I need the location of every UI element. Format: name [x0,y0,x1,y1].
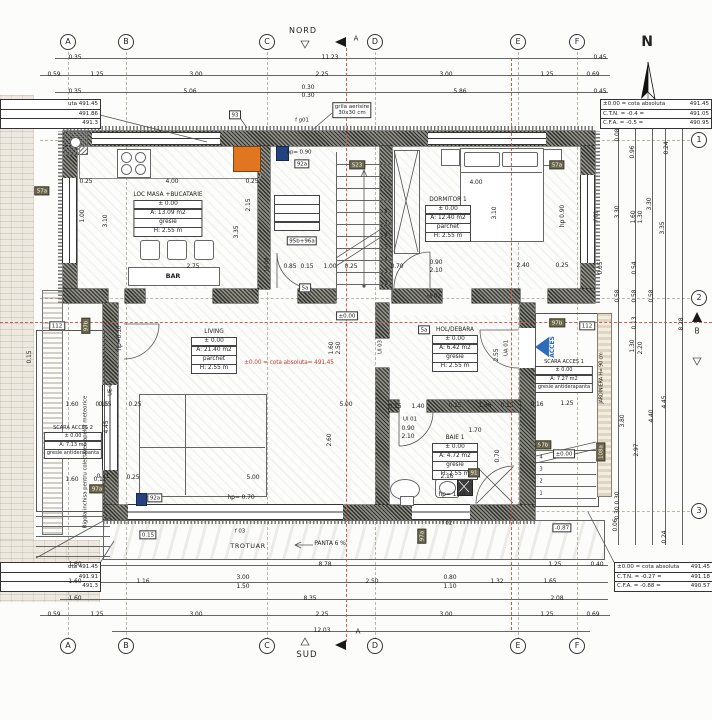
table-row: 491.86 [1,109,100,119]
dim-label: 1.16 [137,579,150,585]
dim-label: 0.15 [389,404,402,410]
dim-label: 1.25 [541,612,554,618]
f01-label: f 01 [594,211,600,221]
dim-label: 3.00 [190,612,203,618]
elevation-table-bottom-left: uta 491.45 491.91 491.3 [0,562,101,592]
table-row: uta 491.45 [1,100,100,109]
room-height: H: 2.55 m [191,364,237,374]
wardrobe-cross [394,150,418,252]
dim-label: 0.90 [430,260,443,266]
elevation-table-bottom-right: ±0.00 = cota absoluta491.45 C.T.N. = -0.… [614,562,712,592]
slope-line-left [36,516,112,558]
grila-callout: grila aerisire30x30 cm [332,102,371,118]
room-name: BAIE 1 [432,436,478,442]
grid-bubble-C-top: C [259,34,275,50]
tag-s23: S23 [349,160,365,169]
shower-tray [476,466,514,504]
table-row: C.F.A. = -0.5 =490.95 [601,118,711,128]
living-level-note: ±0.00 = cota absoluta= 491.45 [244,361,334,367]
bar-label: BAR [166,273,181,280]
compass-needle-light-icon [648,62,655,99]
dim-label: 0.15 [301,264,314,270]
panta-label: PANTA 6 % [314,541,346,547]
ui01-label: UI 01 [403,417,417,423]
acces-arrow-icon [535,337,549,357]
dim-label: 8.35 [304,596,317,602]
dim-label: 1.25 [91,72,104,78]
dim-label: 0.25 [127,475,140,481]
dim-label: 2.08 [551,596,564,602]
trotuar-label: TROTUAR [230,543,266,550]
room-name: DORMITOR 1 [425,198,471,204]
dim-label: 3.35 [234,226,240,239]
tag-level-zero: ±0.00 [336,311,358,320]
acces-label: ACCES [550,336,556,357]
stair-number: 1 [539,492,542,497]
stair-number: 4 [539,456,542,461]
room-height: H: 2.55 m [133,227,202,237]
tag-112: 112 [579,321,595,330]
cell: C.F.A. = -0.88 = [617,583,661,589]
cell: 491.45 [690,101,709,107]
section-line-b [0,322,712,323]
tag-5a: 5a [418,325,430,334]
dim-label: 0.08 [615,129,621,142]
dim-label: 5.86 [454,89,467,95]
tag-95b96a: 95b+96a [287,236,317,245]
dim-label: 0.59 [48,612,61,618]
cell: C.T.N. = -0.4 = [603,111,644,117]
dim-label: 5.00 [340,402,353,408]
dim-label: 2.97 [634,444,640,457]
dim-label: 0.30 [302,93,315,99]
cell: ±0.00 = cota absoluta [603,101,665,107]
dim-label: 1.60 [69,579,82,585]
dim-label: 8.78 [319,562,332,568]
table-row: 491.91 [1,572,100,582]
stair-number: 6 [384,234,387,239]
room-block-stair2: SCARA ACCES 2 ± 0.00 A: 7.13 m2 gresie a… [44,426,102,459]
dim-label: 0.45 [594,55,607,61]
dim-label: 0.30 [615,492,621,505]
room-name: LIVING [191,330,237,336]
room-height: H: 2.55 m [432,362,478,372]
tag-minus-087: -0.87 [552,523,571,532]
dim-label: 4.45 [104,421,110,434]
tag-57a: 57a [34,186,49,195]
room-name: SCARA ACCES 2 [44,426,102,431]
dim-label: 2.10 [402,434,415,440]
grid-bubble-B-bottom: B [118,638,134,654]
dim-label: 3.00 [190,72,203,78]
dim-label: 0.85 [284,264,297,270]
dim-label: 2.75 [187,264,200,270]
section-b-open-icon [693,358,701,365]
dim-label: 3.30 [615,206,621,219]
ui03-label: UI 03 [378,340,384,354]
dim-label: 0.58 [649,290,655,303]
dim-label: 5.00 [247,475,260,481]
dim-label: 0.80 [444,575,457,581]
dim-label: 2.25 [316,612,329,618]
stair-number: 3 [384,270,387,275]
dim-label: 0.15 [96,402,109,408]
section-b-label: B [694,327,699,335]
room-block-stair1: SCARA ACCES 1 ± 0.00 A: 7.27 m2 gresie a… [535,360,593,393]
dim-label: hp= 0.70 [227,495,254,501]
room-block-hall: HOL/DEBARA ± 0.00 A: 6.42 m2 gresie H: 2… [432,328,478,372]
dim-label: 0.35 [69,55,82,61]
dim-label: 1.25 [541,72,554,78]
fg01-label: f g01 [295,118,309,124]
tag-93: 93 [229,110,241,119]
section-a-label-bottom: A [356,629,361,636]
stair-number: 7 [384,222,387,227]
dim-label: 3.00 [440,72,453,78]
dim-label: 3.30 [647,198,653,211]
callout-line: 30x30 cm [338,110,365,116]
table-row: 491.3 [1,581,100,591]
stair-number: 2 [384,282,387,287]
table-row: C.F.A. = -0.88 =490.57 [615,581,712,591]
stair-number: 5 [384,246,387,251]
ua01-label: UA 01 [504,340,510,356]
tag-97a: 97a [417,528,426,543]
room-block-kitchen: LOC MASA +BUCATARIE ± 0.00 A: 13.09 m2 g… [133,193,202,237]
tag-91: 91 [468,468,480,477]
dim-label: 0.15 [449,403,462,409]
room-height: H: 2.55 m [425,232,471,242]
dim-label: 1.25 [91,612,104,618]
rigola-note: Rigola inchisa pentru colectarea apelor … [83,396,89,529]
dim-label: 0.15 [501,403,514,409]
room-name: SCARA ACCES 1 [535,360,593,365]
jardiniera-note: JARDINIERA H= 90 cm [601,352,606,403]
dim-label: 0.70 [495,450,501,463]
section-line-a [346,48,347,642]
dim-label: 3.00 [440,612,453,618]
sud-marker-icon [301,638,309,645]
dim-label: 0.24 [664,142,670,155]
dim-label: 1.25 [561,401,574,407]
room-floor: gresie antiderapanta [535,383,593,393]
dim-label: 1.25 [549,562,562,568]
dim-label: 0.96 [630,146,636,159]
dim-label: 0.11 [94,477,107,483]
cell: 491.45 [691,564,710,570]
ui04-label: UI 04 [265,257,271,271]
axis-line-red [511,58,512,630]
dim-label: 0.69 [587,72,600,78]
f02-label: f 02 [442,521,452,527]
dim-label: 1.65 [544,579,557,585]
tag-97b: 97b [549,318,565,327]
dim-label: 0.69 [587,612,600,618]
table-row: ±0.00 = cota absoluta491.45 [615,563,712,572]
cell: 490.95 [690,120,709,126]
grid-bubble-F-top: F [569,34,585,50]
dim-label: 4.00 [166,179,179,185]
room-name: HOL/DEBARA [432,328,478,334]
room-name: LOC MASA +BUCATARIE [133,193,202,199]
dim-label: 0.54 [632,262,638,275]
grid-bubble-C-bottom: C [259,638,275,654]
dim-label: 3.80 [620,415,626,428]
dim-label: 1.30 [630,340,636,353]
table-row: C.T.N. = -0.4 =491.05 [601,109,711,119]
dim-label: 2.16 [441,474,454,480]
dim-label: 1.32 [491,579,504,585]
dim-label: 2.15 [246,199,252,212]
tag-5a: 5a [299,283,311,292]
room-height [274,222,320,232]
dim-label: 0.06 [613,519,619,532]
dim-label: hp= 1.10 [438,492,465,498]
dim-label: 3.10 [103,215,109,228]
ui02-label: UI 02 [427,294,441,300]
f03-label: f 03 [235,529,245,535]
dim-label: 0.30 [302,85,315,91]
tag-015: 0.15 [139,530,156,539]
dim-label: 3.10 [492,207,498,220]
dim-label: 1.60 [69,562,82,568]
cell: ±0.00 = cota absoluta [617,564,679,570]
floor-plan-drawing: ±0.00 = cota absoluta491.45 C.T.N. = -0.… [0,0,712,720]
dim-label: 0.25 [246,179,259,185]
dim-label: 0.25 [556,263,569,269]
grid-bubble-A-bottom: A [60,638,76,654]
tag-92a: 92a [147,493,162,502]
grid-bubble-E-bottom: E [510,638,526,654]
dim-label: 0.25 [129,402,142,408]
grid-bubble-2: 2 [691,290,707,306]
dim-label: 4.40 [649,410,655,423]
dim-label: 1.40 [412,404,425,410]
tag-97a: 97a [89,484,104,493]
stair-number: 4 [384,258,387,263]
cell: C.T.N. = -0.27 = [617,574,662,580]
tag-112: 112 [49,321,65,330]
dim-label: 1.00 [80,210,86,223]
grid-bubble-F-bottom: F [569,638,585,654]
dim-label: 2.55 [494,349,500,362]
dim-label: 1.00 [324,264,337,270]
dim-label: 0.13 [632,317,638,330]
grid-bubble-D-bottom: D [367,638,383,654]
dim-label: 1.50 [237,584,250,590]
grid-bubble-3: 3 [691,503,707,519]
stair-start-dot [362,284,365,287]
dim-label: 0.05 [598,262,604,275]
dim-label: 2.25 [316,72,329,78]
panta-arrow [295,542,313,548]
grid-bubble-D-top: D [367,34,383,50]
dim-label: 2.50 [336,342,342,355]
grid-bubble-A-top: A [60,34,76,50]
dim-label: 2.60 [327,434,333,447]
nord-label: NORD [289,27,317,35]
door-arc-living [124,324,159,359]
section-a-label-top: A [354,36,359,43]
room-block-bedroom: DORMITOR 1 ± 0.00 A: 12.40 m2 parchet H:… [425,198,471,242]
dim-label: 0.70 [391,264,404,270]
sill-height-note: hp= 0.90 [287,150,312,156]
nord-marker-icon [301,41,309,48]
dim-label: 0.35 [69,89,82,95]
stair-number: 3 [539,468,542,473]
dim-label: 1.60 [66,402,79,408]
dim-label: 1.10 [444,584,457,590]
tag-57a: 57a [549,160,564,169]
dim-label: 0.59 [48,72,61,78]
tag-97b: 97b [81,318,90,334]
dim-label: 2.10 [430,268,443,274]
table-row: uta 491.45 [1,563,100,572]
stair-number: 5 [539,444,542,449]
section-a-arrow-top-icon [335,37,346,47]
dim-label: 2.50 [366,579,379,585]
room-block-understair [274,196,320,231]
dim-label: 0.25 [80,179,93,185]
cell: C.F.A. = -0.5 = [603,120,643,126]
dim-label: 0.25 [345,264,358,270]
tag-108a: 108a [596,443,605,462]
dim-label: 0.40 [591,562,604,568]
dim-label: 4.00 [470,180,483,186]
north-letter: N [641,35,653,49]
cell: 491.18 [691,574,710,580]
tag-level-zero: ±0.00 [553,449,575,458]
callout-line: grila aerisire [335,104,369,110]
cell: 490.57 [691,583,710,589]
dim-label: hp 0.90 [560,205,566,227]
grid-bubble-B-top: B [118,34,134,50]
dim-label: 0.24 [662,531,668,544]
dim-label: 0.58 [632,290,638,303]
grid-bubble-E-top: E [510,34,526,50]
grid-bubble-1: 1 [691,132,707,148]
dim-label: 5.06 [184,89,197,95]
stair-number: 8 [384,210,387,215]
room-block-living: LIVING ± 0.00 A: 21.40 m2 parchet H: 2.5… [191,330,237,374]
dim-label: 1.36 [479,403,492,409]
dim-label: 3.00 [237,575,250,581]
dim-label: 11.23 [322,55,339,61]
table-row: C.T.N. = -0.27 =491.18 [615,572,712,582]
dim-label: 0.90 [402,426,415,432]
section-b-arrow-icon [692,312,702,322]
ue01-label: UE 01 [108,380,114,396]
door-arc-bedroom [394,252,430,288]
compass-needle-dark-icon [641,62,648,99]
section-a-arrow-bottom-icon [335,640,346,650]
dim-label: 0.16 [531,402,544,408]
dim-label: 4.45 [662,396,668,409]
dim-label: 1.60 [69,596,82,602]
dim-label: 2.40 [517,263,530,269]
table-row: 491.3 [1,118,100,128]
dim-label: 0.58 [615,290,621,303]
tag-92a: 92a [294,159,309,168]
room-floor: gresie antiderapanta [44,449,102,459]
dim-label: 0.45 [594,89,607,95]
dim-label: 3.35 [660,222,666,235]
dim-label: 1.70 [469,428,482,434]
dim-label: 1.60 [66,477,79,483]
dim-label: 0.15 [27,351,33,364]
sud-label: SUD [296,651,317,660]
elevation-table-top-right: ±0.00 = cota absoluta491.45 C.T.N. = -0.… [600,99,712,129]
tag-97b: 97b [535,440,551,449]
dim-label: hp=0.10 [117,325,123,350]
dim-label: 1.30 [638,211,644,224]
dim-label: 8.28 [679,318,685,331]
cell: 491.05 [690,111,709,117]
dim-label: 2.20 [638,342,644,355]
table-row: ±0.00 = cota absoluta491.45 [601,100,711,109]
dim-label: 12.03 [314,628,331,634]
elevation-table-top-left: uta 491.45 491.86 491.3 [0,99,101,129]
stair-number: 2 [539,480,542,485]
